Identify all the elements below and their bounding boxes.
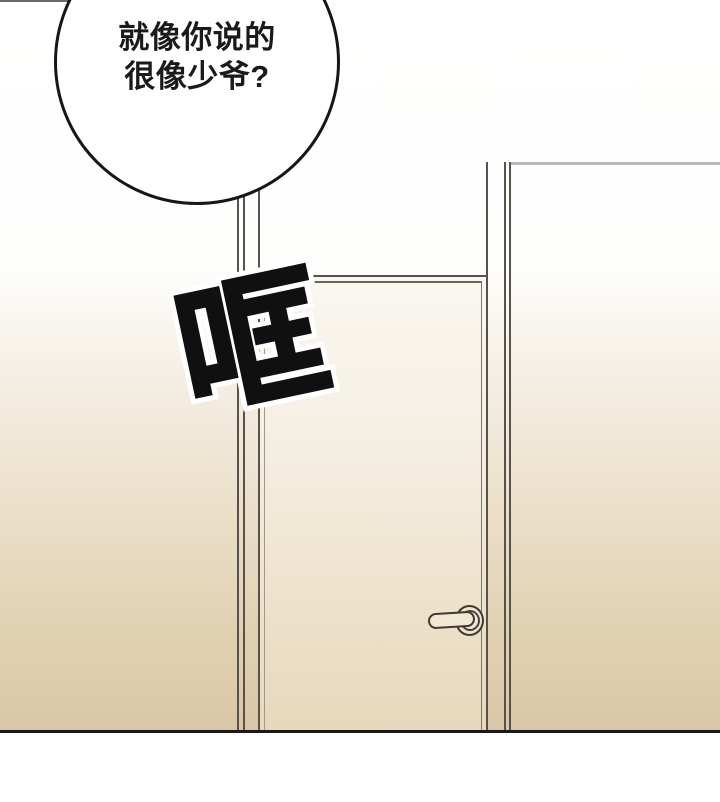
sfx-fill-layer: 哐 — [164, 257, 340, 433]
sfx-text: 哐 哐 — [140, 234, 365, 455]
door-handle-lever — [428, 611, 476, 630]
floor-line — [0, 730, 720, 733]
speech-bubble-text: 就像你说的 很像少爷? — [54, 18, 340, 96]
door-edge-line-right — [486, 162, 488, 732]
comic-panel: 哐 哐 就像你说的 很像少爷? — [0, 0, 720, 802]
door-frame-line-outer-left — [237, 162, 239, 732]
speech-bubble-line-2: 很像少爷? — [54, 57, 340, 96]
door-frame-line-inner-right — [504, 162, 506, 732]
door-frame-line-outer-right — [509, 162, 512, 732]
speech-bubble-line-1: 就像你说的 — [54, 18, 340, 57]
wall-line-right-segment — [509, 162, 720, 165]
door-frame-line-inner-left — [243, 162, 245, 732]
